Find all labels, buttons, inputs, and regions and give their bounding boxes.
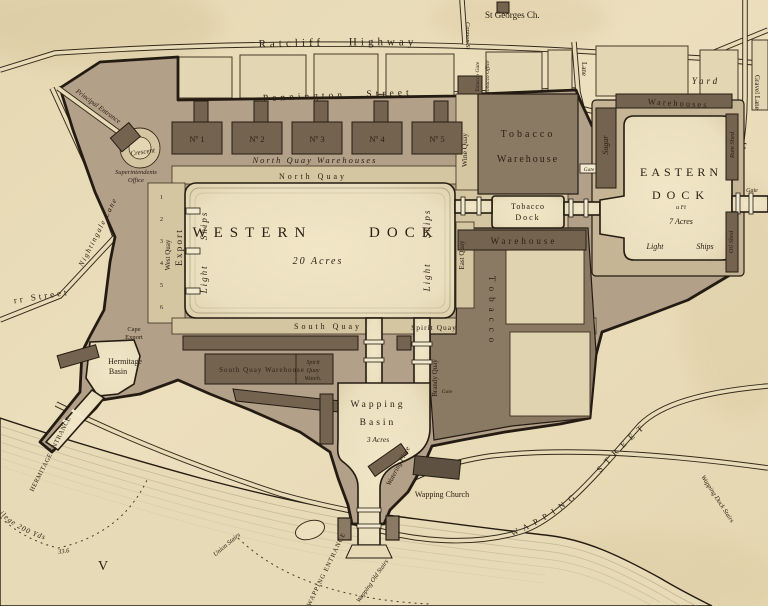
light-ships-east-label: Light Ships — [422, 209, 432, 293]
western-dock-label: WESTERN DOCK — [192, 225, 439, 241]
south-quay-shed-west — [183, 336, 358, 350]
west-quay-label: West Quay — [164, 239, 172, 270]
basin-gate-label: Gate — [442, 389, 453, 395]
north-quay-label: North Quay — [279, 172, 347, 181]
western-dock-basin — [185, 183, 455, 318]
tobacco-east-gate-label: Gate — [584, 167, 595, 173]
superintendents-office-label-2: Office — [128, 177, 144, 184]
tobacco-yard-upper — [506, 248, 584, 324]
tobacco-dock-label-2: Dock — [515, 213, 540, 222]
west-jetty — [186, 248, 200, 254]
spirit-wareh-label-3: Wareh. — [305, 376, 322, 382]
west-jetty — [186, 288, 200, 294]
tobacco-warehouse-block — [478, 94, 578, 194]
tobacco-dock-west-channel — [455, 200, 492, 213]
export-quay-label: Export — [175, 228, 185, 266]
south-quay-label: South Quay — [294, 322, 362, 331]
wine-quay-label: Wine Quay — [460, 133, 469, 167]
river-anchor-mark: V — [98, 559, 108, 574]
wapping-church-block — [413, 456, 461, 480]
warehouse-no5-label: Nº 5 — [429, 134, 444, 144]
warehouse-no1-label: Nº 1 — [189, 134, 204, 144]
wapping-basin-label-1: Wapping — [350, 400, 405, 410]
spirit-wareh-label-1: Spirit — [306, 360, 320, 366]
sugar-label: Sugar — [601, 135, 610, 155]
eastern-dock-acres-label: 7 Acres — [669, 217, 693, 226]
berth-5: 5 — [160, 283, 163, 289]
hermitage-basin-label-2: Basin — [109, 367, 127, 376]
tobacco-warehouse-label-2: Warehouse — [497, 154, 559, 165]
tobacco-dock-label-1: Tobacco — [511, 202, 545, 211]
tobacco-warehouse-label-1: Tobacco — [501, 129, 556, 140]
tobacco-yard-lower — [510, 332, 590, 416]
south-quay-shed-mid — [397, 336, 411, 350]
cape-export-label-1: Cape — [127, 326, 140, 333]
map-canvas: St Georges Ch. Ratcliff Highway Penningt… — [0, 0, 768, 606]
tobacco-ground-label: Tobacco — [487, 276, 497, 348]
hermitage-basin-label-1: Hermitage — [108, 357, 142, 366]
cape-export-label-2: Export — [125, 334, 143, 341]
spirit-quay-label: Spirit Quay — [411, 323, 457, 332]
eastern-light-label: Light — [646, 242, 665, 251]
wapping-west-shed — [320, 394, 333, 444]
tobacco-office-label: Tobacco Office — [484, 60, 491, 94]
western-dock-acres-label: 20 Acres — [293, 256, 344, 267]
ratcliff-highway-text: Ratcliff Highway — [258, 36, 417, 50]
west-jetty — [186, 208, 200, 214]
berth-4: 4 — [160, 261, 163, 267]
eastern-dock-depth-label: u Ft — [676, 205, 686, 211]
wapping-entrance-mouth — [346, 545, 392, 558]
berth-6: 6 — [160, 305, 163, 311]
wapping-church-label: Wapping Church — [415, 490, 469, 499]
st-georges-church-label: St Georges Ch. — [485, 10, 540, 20]
south-quay-warehouse-label: South Quay Warehouse — [219, 366, 305, 374]
yard-label: Yard — [692, 76, 720, 86]
warehouse-south-label: Warehouse — [491, 236, 558, 246]
wapping-basin-label-2: Basin — [360, 418, 397, 428]
rum-shed-label: Rum Shed — [729, 131, 736, 159]
cannon-street-label: Cannon St — [464, 22, 471, 49]
eastern-ships-label: Ships — [696, 242, 713, 251]
east-quay-label: East Quay — [458, 240, 466, 269]
wapping-channel-west — [366, 318, 382, 385]
eastern-gate-label: Gate — [746, 188, 758, 194]
warehouse-no2-label: Nº 2 — [249, 134, 264, 144]
warehouse-no3-label: Nº 3 — [309, 134, 324, 144]
london-docks-map: St Georges Ch. Ratcliff Highway Penningt… — [0, 0, 768, 606]
brandy-quay-label: Brandy Quay — [431, 359, 439, 397]
tobacco-gate-label: Tobacco Gate — [475, 61, 481, 92]
berth-2: 2 — [160, 217, 163, 223]
berth-3: 3 — [160, 239, 163, 245]
berth-1: 1 — [160, 195, 163, 201]
ratcliff-highway-label: Ratcliff Highway — [258, 36, 417, 50]
superintendents-office-label-1: Superintendents — [115, 169, 157, 176]
north-quay-warehouses-label: North Quay Warehouses — [252, 155, 378, 165]
light-ships-west-label: Light Ships — [199, 211, 209, 295]
entrance-side-building-east — [386, 516, 399, 540]
gravel-lane-label: Gravel Lane — [753, 75, 761, 110]
oil-shed-label: Oil Shed — [728, 230, 735, 253]
warehouse-no4-label: Nº 4 — [369, 134, 385, 144]
spirit-wareh-label-2: Quay — [307, 368, 320, 374]
wapping-basin-acres-label: 3 Acres — [366, 435, 389, 444]
lane-label: Lane — [580, 62, 588, 76]
eastern-dock-label-1: EASTERN — [640, 165, 722, 179]
eastern-dock-label-2: DOCK — [652, 188, 710, 202]
tobacco-dock-basin — [492, 196, 564, 228]
